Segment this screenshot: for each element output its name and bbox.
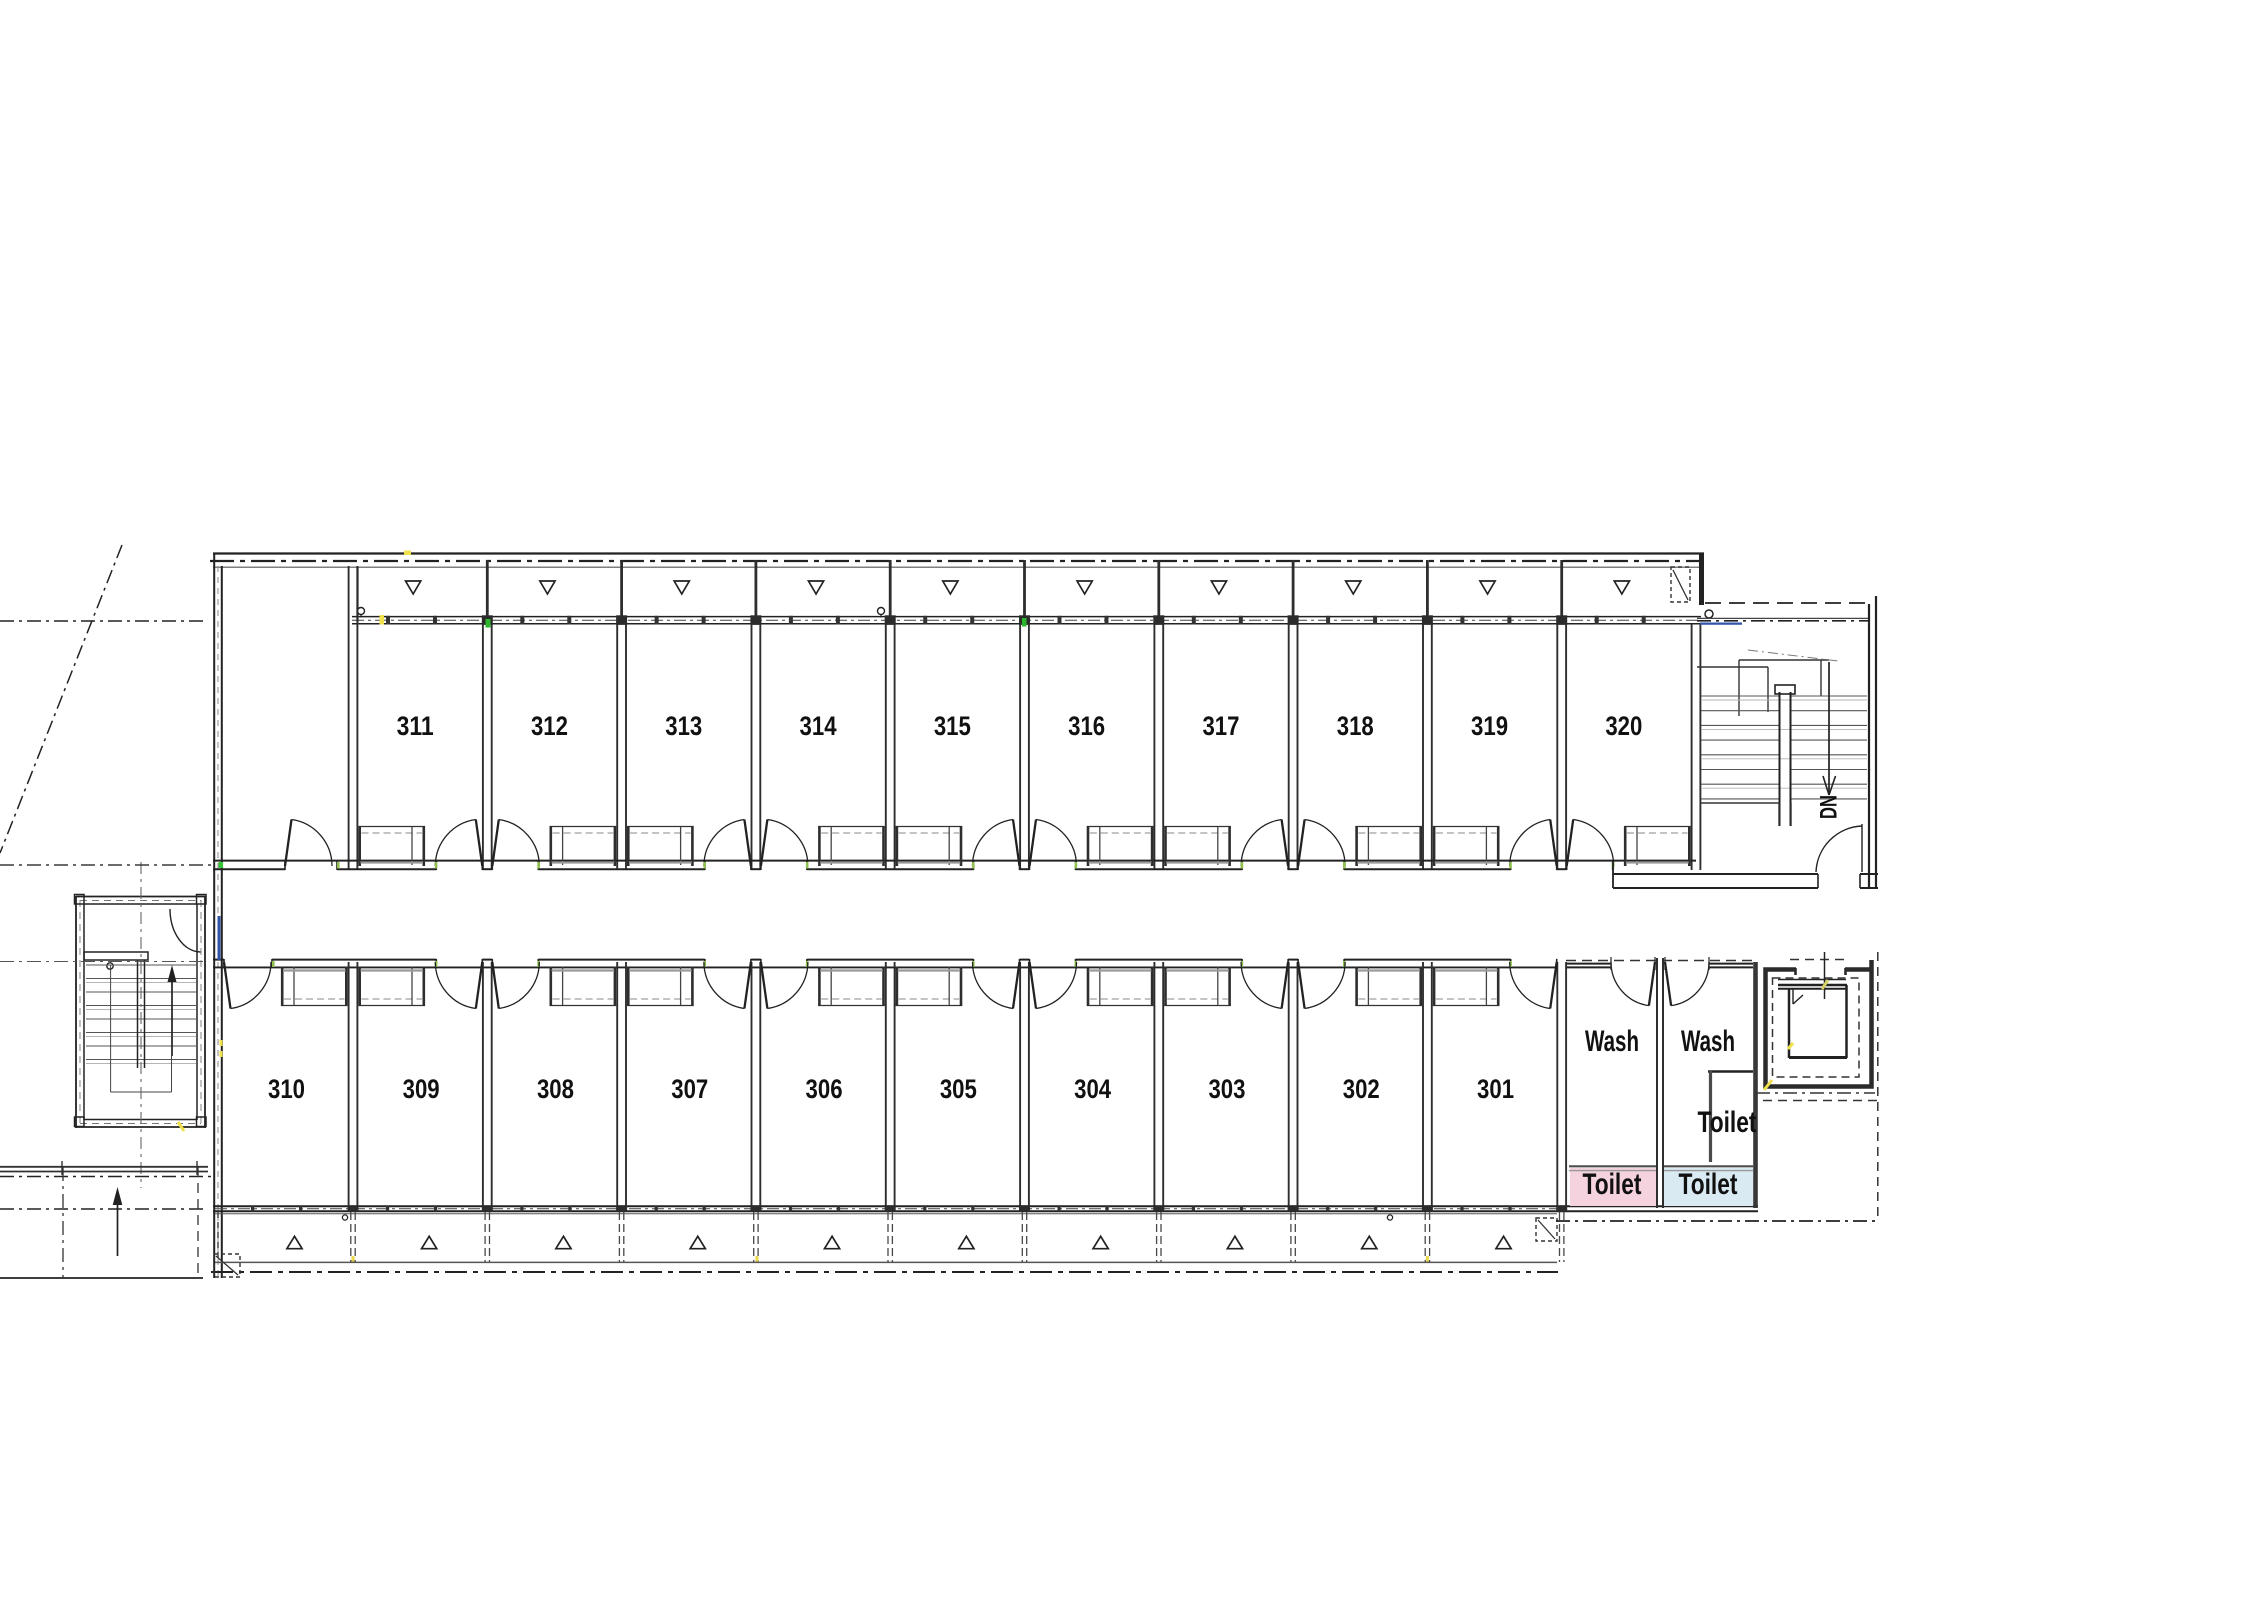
svg-text:301: 301 [1477,1074,1514,1104]
svg-text:Toilet: Toilet [1679,1168,1738,1201]
svg-text:307: 307 [671,1074,708,1104]
svg-text:Toilet: Toilet [1583,1168,1642,1201]
svg-text:315: 315 [934,711,971,741]
svg-text:302: 302 [1343,1074,1380,1104]
svg-text:Wash: Wash [1585,1025,1639,1058]
svg-text:Toilet: Toilet [1698,1106,1757,1139]
svg-text:304: 304 [1074,1074,1111,1104]
svg-text:306: 306 [806,1074,843,1104]
svg-text:309: 309 [403,1074,440,1104]
svg-text:319: 319 [1471,711,1508,741]
svg-text:314: 314 [800,711,837,741]
svg-text:305: 305 [940,1074,977,1104]
svg-text:308: 308 [537,1074,574,1104]
svg-text:Wash: Wash [1681,1025,1735,1058]
svg-text:318: 318 [1337,711,1374,741]
svg-text:317: 317 [1202,711,1239,741]
svg-text:320: 320 [1605,711,1642,741]
svg-text:311: 311 [397,711,434,741]
svg-text:316: 316 [1068,711,1105,741]
svg-text:DN: DN [1816,795,1843,819]
svg-text:312: 312 [531,711,568,741]
svg-text:303: 303 [1208,1074,1245,1104]
svg-text:313: 313 [665,711,702,741]
svg-text:310: 310 [268,1074,305,1104]
